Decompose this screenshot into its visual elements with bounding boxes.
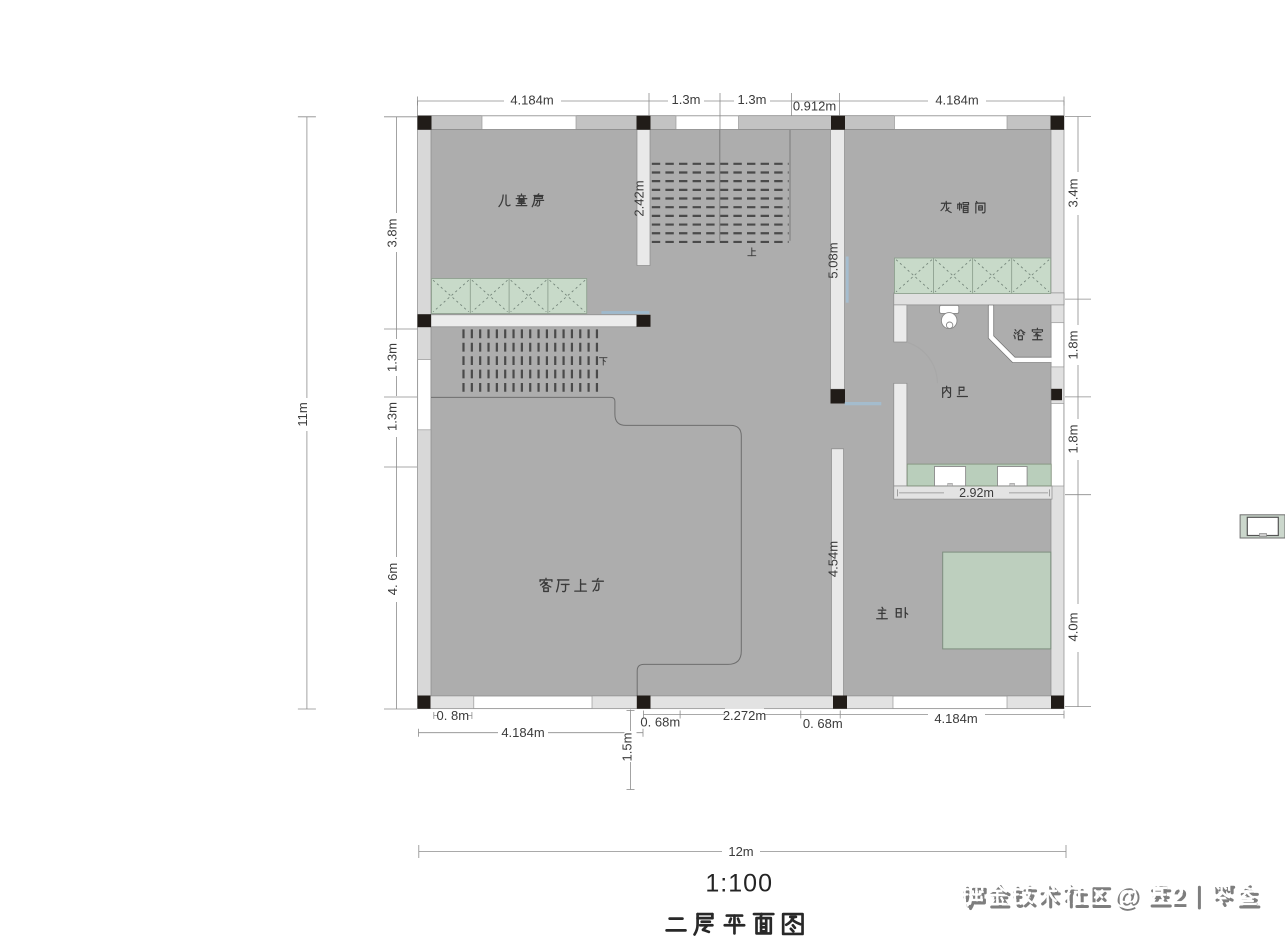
- svg-text:0. 68m: 0. 68m: [803, 716, 843, 731]
- svg-text:2: 2: [1170, 882, 1184, 910]
- svg-text:0. 8m: 0. 8m: [437, 708, 470, 723]
- svg-text:1.3m: 1.3m: [672, 92, 701, 107]
- svg-text:1.3m: 1.3m: [385, 343, 400, 372]
- svg-text:12m: 12m: [728, 844, 753, 859]
- svg-text:4.54m: 4.54m: [826, 541, 841, 577]
- svg-text:2.272m: 2.272m: [723, 708, 766, 723]
- svg-text:4.184m: 4.184m: [501, 725, 544, 740]
- svg-text:4.184m: 4.184m: [934, 711, 977, 726]
- svg-text:1.8m: 1.8m: [1066, 331, 1081, 360]
- svg-text:4.0m: 4.0m: [1066, 613, 1081, 642]
- svg-text:2.92m: 2.92m: [959, 486, 994, 500]
- svg-text:@: @: [1113, 882, 1138, 910]
- svg-text:0. 68m: 0. 68m: [640, 715, 680, 730]
- svg-text:5.08m: 5.08m: [826, 242, 841, 278]
- svg-text:1.5m: 1.5m: [620, 733, 635, 762]
- svg-text:3.4m: 3.4m: [1066, 179, 1081, 208]
- svg-text:4. 6m: 4. 6m: [385, 563, 400, 596]
- svg-text:2.42m: 2.42m: [632, 180, 647, 216]
- svg-text:1.3m: 1.3m: [738, 92, 767, 107]
- svg-text:4.184m: 4.184m: [510, 93, 553, 108]
- svg-text:4.184m: 4.184m: [935, 93, 978, 108]
- svg-text:11m: 11m: [295, 402, 310, 426]
- svg-text:3.8m: 3.8m: [385, 219, 400, 248]
- svg-text:1.8m: 1.8m: [1066, 425, 1081, 454]
- svg-text:1.3m: 1.3m: [385, 402, 400, 431]
- svg-text:1:100: 1:100: [705, 870, 773, 898]
- svg-text:0.912m: 0.912m: [793, 99, 836, 114]
